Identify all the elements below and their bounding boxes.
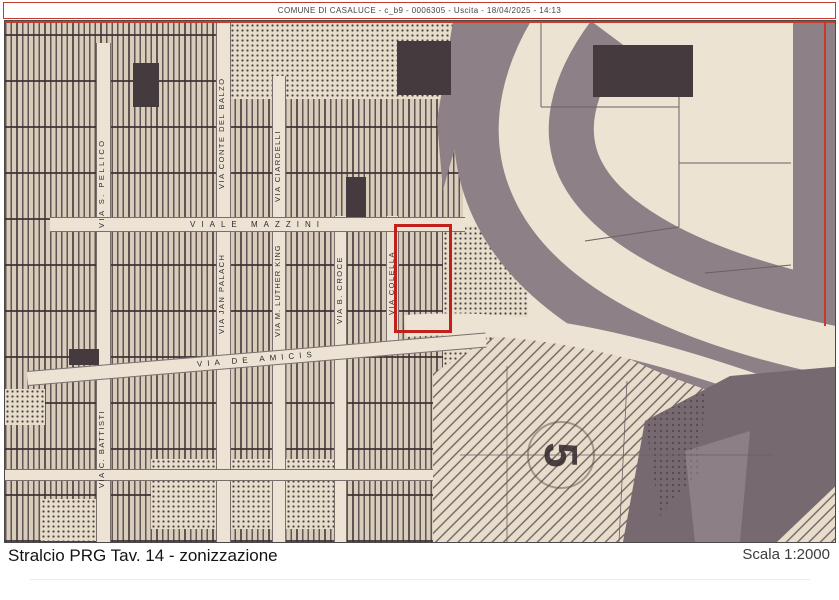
header-banner: COMUNE DI CASALUCE - c_b9 - 0006305 - Us… [3, 2, 836, 19]
street-label-via-c-battisti: VIA C. BATTISTI [97, 391, 106, 506]
zone-5-label: 5 [534, 442, 588, 468]
street-label-via-jan-palach: VIA JAN PALACH [217, 235, 226, 353]
street-label-via-m-luther-king: VIA M. LUTHER KING [273, 227, 282, 355]
street-label-via-ciardelli: VIA CIARDELLI [273, 116, 282, 216]
footer-faint-line [30, 579, 810, 580]
zone-5-marker: 5 [527, 421, 595, 489]
page: COMUNE DI CASALUCE - c_b9 - 0006305 - Us… [0, 0, 839, 600]
header-text: COMUNE DI CASALUCE - c_b9 - 0006305 - Us… [278, 6, 561, 15]
grey-band-east [793, 23, 835, 306]
zoning-map: VIALE MAZZINI VIA DE AMICIS [4, 20, 836, 543]
footer-scale: Scala 1:2000 [742, 546, 830, 563]
parcel-highlight-box [394, 224, 452, 333]
footer-title: Stralcio PRG Tav. 14 - zonizzazione [8, 546, 278, 566]
street-label-via-b-croce: VIA B. CROCE [335, 235, 344, 345]
street-label-via-s-pellico: VIA S. PELLICO [97, 111, 106, 256]
street-label-via-conte-del-balzo: VIA CONTE DEL BALZO [217, 51, 226, 216]
red-frame-right-line [824, 21, 826, 326]
red-frame-top-line [5, 21, 835, 23]
